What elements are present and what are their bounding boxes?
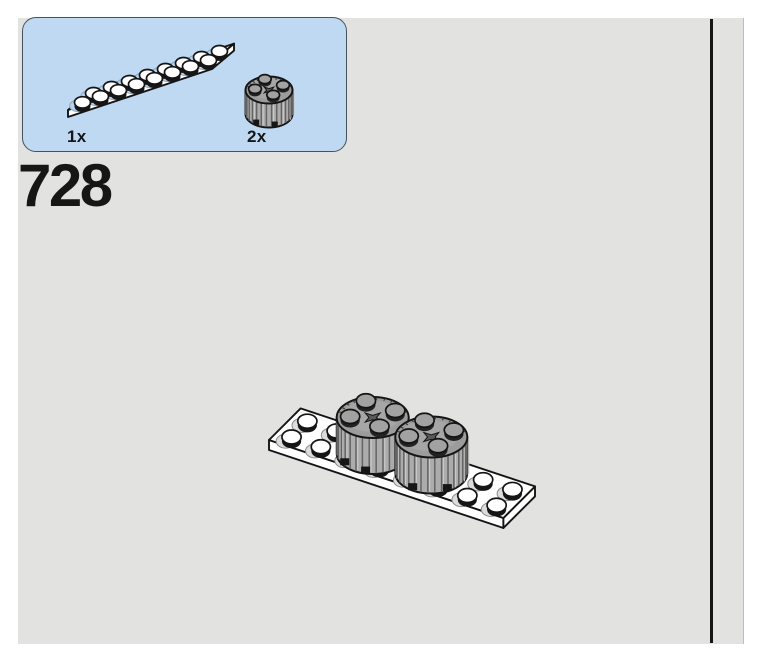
assembly-round-brick-right xyxy=(395,413,469,493)
page-divider-line xyxy=(710,19,713,643)
part-plate-2x8-icon xyxy=(68,44,234,117)
step-number: 728 xyxy=(18,156,111,216)
part-count-label: 1x xyxy=(67,128,87,145)
assembly-illustration xyxy=(250,370,560,550)
part-count-label: 2x xyxy=(247,128,267,145)
part-round-brick-2x2-icon xyxy=(246,75,295,128)
parts-callout: 1x 2x xyxy=(22,17,347,152)
